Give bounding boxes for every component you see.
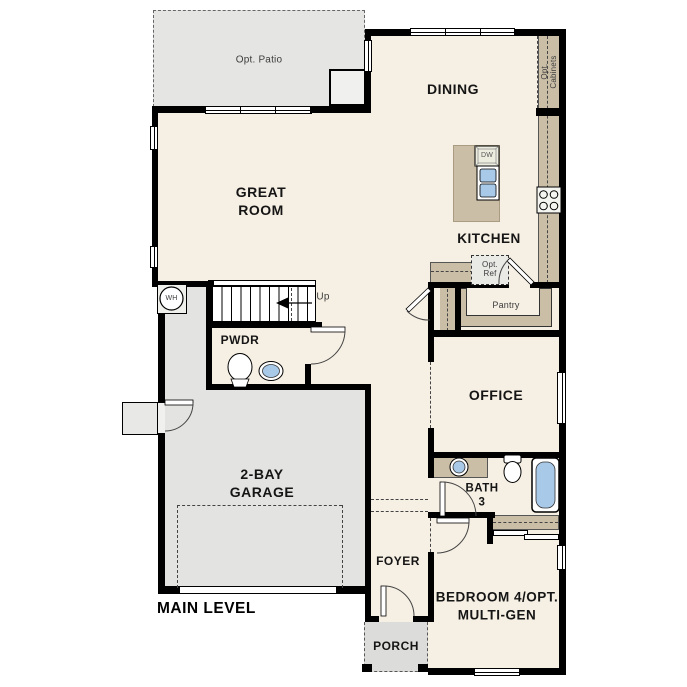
- fixtures-layer: [0, 0, 687, 687]
- front-door: [381, 586, 414, 616]
- sink-icon: [259, 362, 283, 381]
- up-arrow-icon: [276, 298, 312, 309]
- label-opt-cabinets: Opt. Cabinets: [540, 55, 558, 88]
- bathtub-icon: [532, 458, 559, 512]
- label-garage: 2-BAY GARAGE: [230, 465, 294, 501]
- label-porch: PORCH: [373, 639, 419, 655]
- label-great-room: GREAT ROOM: [236, 183, 286, 219]
- label-opt-patio: Opt. Patio: [236, 54, 282, 66]
- label-up: Up: [316, 291, 329, 303]
- sink-icon: [450, 458, 468, 476]
- toilet-icon: [228, 354, 252, 388]
- label-bath3: BATH 3: [465, 482, 498, 511]
- label-opt-ref: Opt. Ref: [482, 260, 498, 278]
- label-bedroom4: BEDROOM 4/OPT. MULTI-GEN: [436, 588, 559, 623]
- label-office: OFFICE: [469, 386, 523, 404]
- garage-side-door: [165, 400, 193, 431]
- hall-door: [406, 288, 431, 320]
- plan-title: MAIN LEVEL: [157, 600, 256, 618]
- toilet-icon: [504, 455, 521, 483]
- label-kitchen: KITCHEN: [457, 230, 521, 248]
- cooktop-icon: [537, 187, 561, 213]
- bedroom-door: [437, 518, 469, 553]
- powder-room-door: [311, 327, 345, 364]
- label-pantry: Pantry: [492, 300, 519, 310]
- label-dishwasher: DW: [481, 152, 493, 160]
- label-pwdr: PWDR: [221, 333, 260, 349]
- kitchen-sink-icon: [477, 166, 499, 200]
- floor-plan: Opt. Patio DINING GREAT ROOM Opt. Cabine…: [0, 0, 687, 687]
- label-dining: DINING: [427, 80, 479, 98]
- label-water-heater: WH: [165, 294, 177, 302]
- pantry-door: [499, 258, 534, 285]
- label-foyer: FOYER: [376, 554, 420, 570]
